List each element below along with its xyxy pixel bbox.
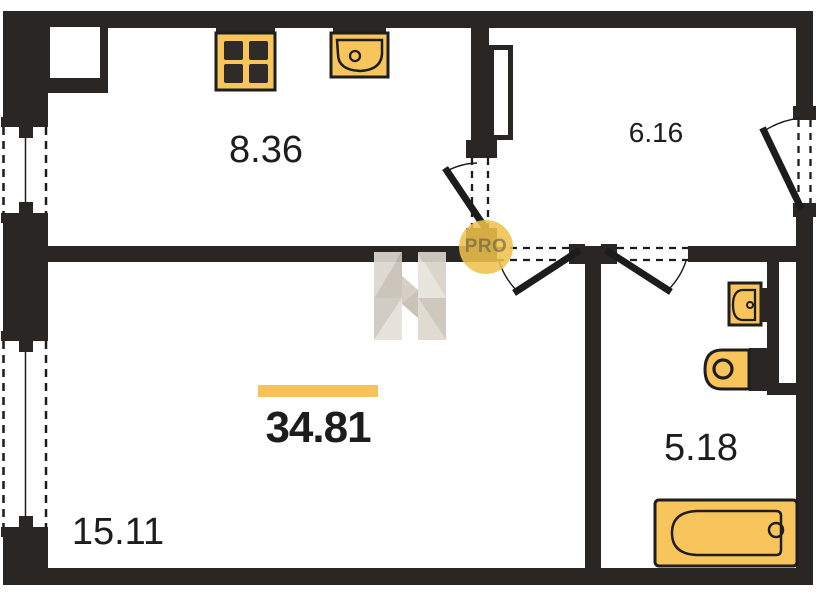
sill — [1, 213, 48, 223]
kitchen-sink-icon — [331, 25, 388, 77]
duct-wall-return — [767, 383, 797, 395]
wall-bottom — [3, 568, 813, 585]
kitchen-window — [1, 117, 48, 223]
toilet-icon — [705, 348, 768, 391]
wall-kitchen-hall — [471, 28, 489, 143]
kitchen-door — [447, 158, 488, 228]
shaft-notch — [50, 27, 100, 78]
bathroom-door — [609, 248, 688, 290]
kitchen-door-stub-top — [466, 140, 497, 158]
total-area-accent-bar — [258, 385, 378, 397]
duct-wall-vertical — [767, 258, 779, 395]
wall-living-bath — [585, 246, 601, 568]
wall-left-mid — [3, 223, 48, 332]
total-area-label: 34.81 — [265, 406, 370, 450]
sill — [1, 117, 48, 127]
wall-right-upper — [796, 11, 813, 108]
h-logo-watermark — [374, 252, 446, 340]
wall-hall-bath — [688, 246, 796, 262]
sill — [1, 331, 48, 341]
hallway-area-label: 6.16 — [629, 119, 684, 147]
bathroom-sink-icon — [729, 283, 770, 325]
entrance-door — [764, 118, 811, 206]
kitchen-area-label: 8.36 — [229, 131, 303, 169]
stove-icon — [216, 25, 275, 90]
wall-top — [3, 11, 813, 28]
bathroom-area-label: 5.18 — [664, 429, 738, 467]
wall-right-lower — [796, 217, 813, 568]
wall-left-upper — [3, 93, 48, 118]
vent-duct — [489, 45, 513, 140]
living-window — [1, 331, 48, 537]
bathtub-icon — [655, 500, 797, 566]
living-room-area-label: 15.11 — [72, 513, 164, 551]
floor-plan: PRO 8.36 6.16 15.11 5.18 34.81 — [0, 0, 823, 600]
floor-plan-svg — [0, 0, 823, 600]
sill — [1, 527, 48, 537]
pro-badge-text: PRO — [465, 236, 508, 258]
